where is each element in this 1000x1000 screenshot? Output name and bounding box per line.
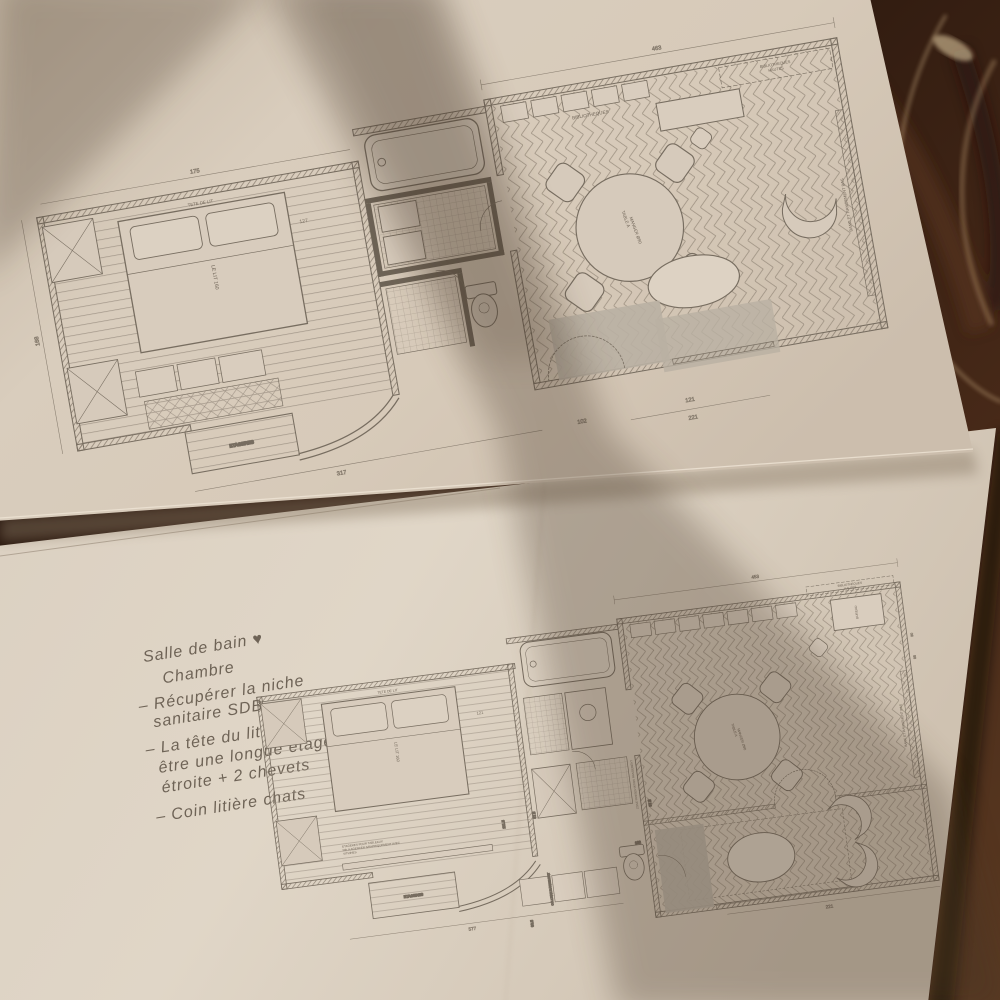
closet <box>67 360 127 424</box>
svg-text:30: 30 <box>910 633 914 637</box>
photo-of-floor-plans: Salle de bain ♥ Chambre – Récupérer la n… <box>0 0 1000 1000</box>
svg-text:85: 85 <box>913 655 917 659</box>
closet <box>276 816 322 866</box>
svg-text:453: 453 <box>751 574 760 580</box>
scene: Salle de bain ♥ Chambre – Récupérer la n… <box>0 0 1000 1000</box>
closet <box>42 218 102 282</box>
closet <box>261 699 307 749</box>
svg-text:577: 577 <box>468 926 477 932</box>
bedroom: TETE DE LIT LE LIT 160 ETAGERES POUR TAB… <box>257 663 540 889</box>
